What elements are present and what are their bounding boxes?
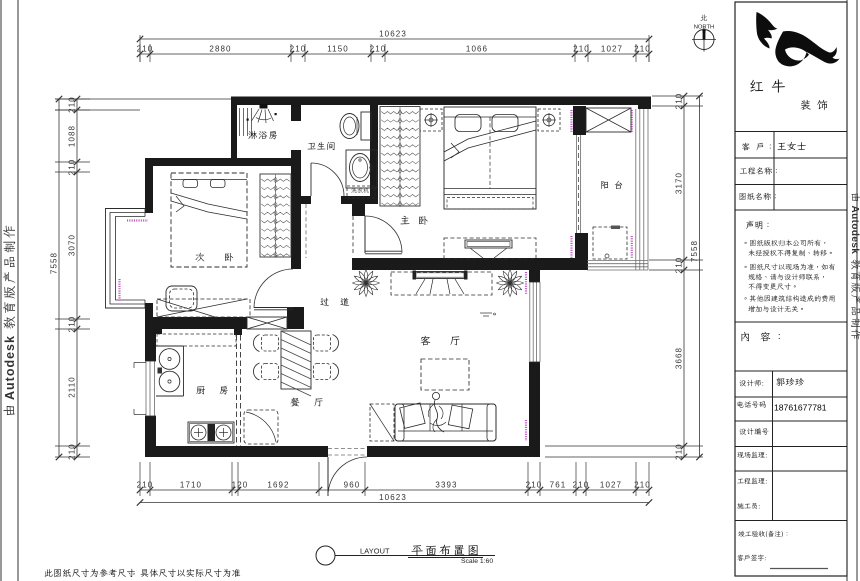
svg-text:210: 210 (370, 45, 387, 54)
svg-text:120: 120 (232, 481, 249, 490)
svg-text:210: 210 (675, 257, 684, 274)
svg-text:3170: 3170 (675, 172, 684, 194)
svg-text:210: 210 (68, 159, 77, 176)
svg-text:2110: 2110 (68, 376, 77, 398)
svg-text:1710: 1710 (180, 481, 202, 490)
svg-text:Scale 1:60: Scale 1:60 (461, 558, 493, 565)
svg-text:3070: 3070 (68, 234, 77, 256)
svg-text:210: 210 (290, 45, 307, 54)
svg-text:210: 210 (675, 443, 684, 460)
svg-text:1150: 1150 (327, 45, 349, 54)
svg-text:960: 960 (344, 481, 361, 490)
svg-text:LAYOUT: LAYOUT (360, 547, 390, 556)
svg-text:210: 210 (137, 45, 154, 54)
svg-text:1088: 1088 (68, 125, 77, 147)
svg-text:210: 210 (137, 481, 154, 490)
svg-text:210: 210 (573, 481, 590, 490)
svg-text:3668: 3668 (675, 347, 684, 369)
svg-text:210: 210 (68, 316, 77, 333)
svg-text:7558: 7558 (50, 252, 59, 274)
svg-text:10623: 10623 (379, 30, 407, 39)
svg-text:1066: 1066 (466, 45, 488, 54)
svg-text:2880: 2880 (209, 45, 231, 54)
svg-text:1027: 1027 (601, 45, 623, 54)
svg-text:3393: 3393 (435, 481, 457, 490)
svg-text:Autodesk: Autodesk (3, 335, 17, 400)
svg-text:Autodesk: Autodesk (849, 206, 860, 255)
svg-text:7558: 7558 (690, 240, 699, 262)
svg-text:761: 761 (550, 481, 567, 490)
svg-text:210: 210 (634, 45, 651, 54)
svg-text:10623: 10623 (379, 493, 407, 502)
svg-text:210: 210 (573, 45, 590, 54)
svg-text:1027: 1027 (600, 481, 622, 490)
svg-text:1692: 1692 (267, 481, 289, 490)
svg-text:210: 210 (526, 481, 543, 490)
svg-text:210: 210 (634, 481, 651, 490)
svg-text:18761677781: 18761677781 (774, 403, 827, 413)
svg-text:NORTH: NORTH (694, 25, 715, 31)
svg-text:210: 210 (68, 443, 77, 460)
svg-text:210: 210 (68, 96, 77, 113)
svg-text:210: 210 (675, 93, 684, 110)
